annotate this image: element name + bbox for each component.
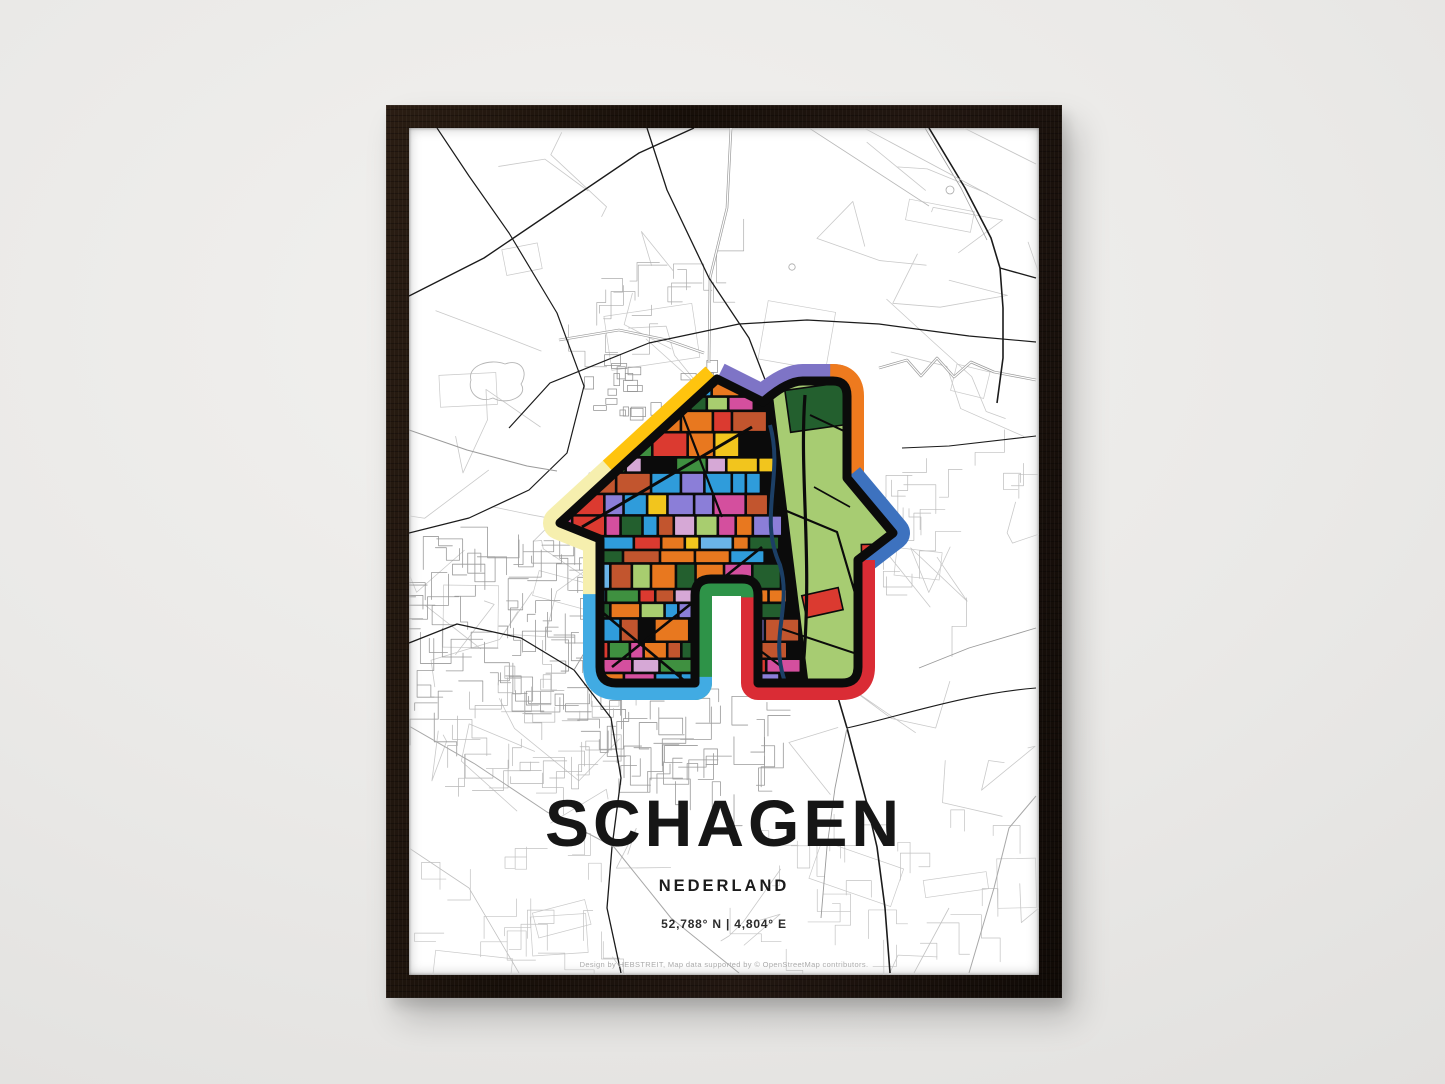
poster-coordinates: 52,788° N | 4,804° E bbox=[409, 917, 1039, 931]
poster-attribution: Design by HEBSTREIT, Map data supported … bbox=[409, 960, 1039, 969]
poster-title: SCHAGEN bbox=[409, 790, 1039, 856]
map-poster: SCHAGEN NEDERLAND 52,788° N | 4,804° E D… bbox=[409, 128, 1039, 975]
poster-subtitle: NEDERLAND bbox=[409, 877, 1039, 896]
picture-frame: SCHAGEN NEDERLAND 52,788° N | 4,804° E D… bbox=[386, 105, 1062, 998]
house-map-icon bbox=[532, 347, 932, 727]
photo-stage: SCHAGEN NEDERLAND 52,788° N | 4,804° E D… bbox=[0, 0, 1445, 1084]
